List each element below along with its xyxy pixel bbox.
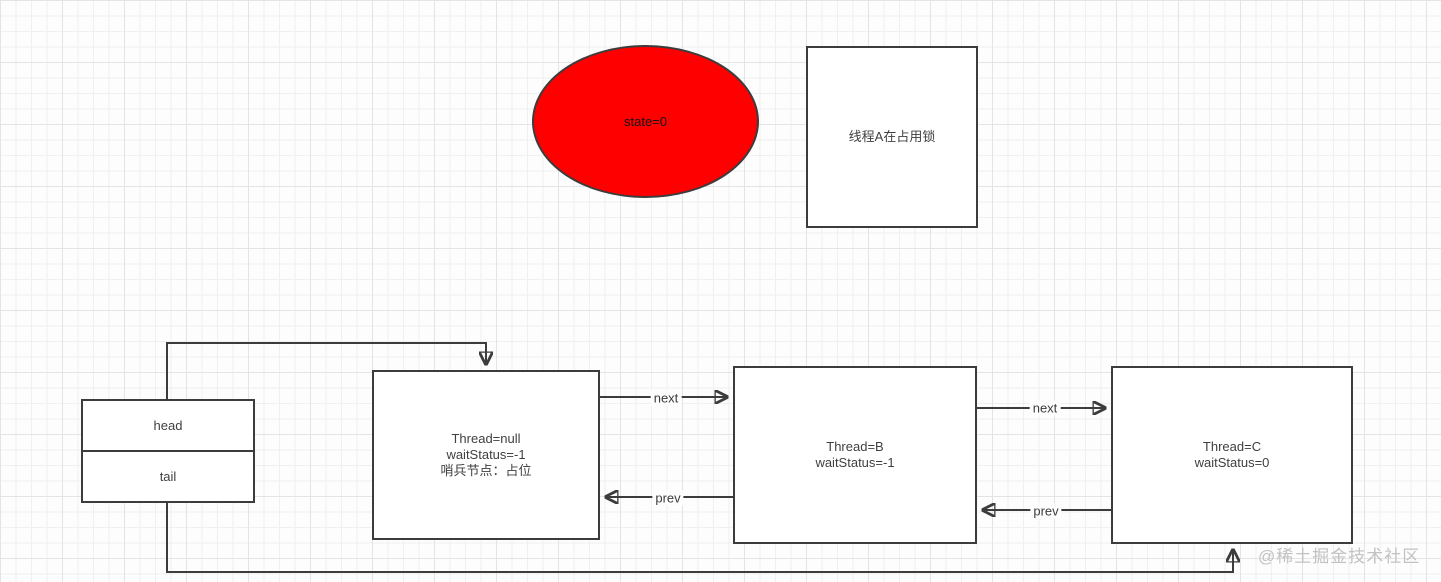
head-tail-box: head tail: [81, 399, 255, 503]
prev-label-2: prev: [1030, 504, 1061, 519]
node-line: waitStatus=0: [1195, 455, 1270, 471]
node-line: Thread=null: [451, 431, 520, 447]
node-c: Thread=C waitStatus=0: [1111, 366, 1353, 544]
thread-a-label: 线程A在占用锁: [849, 129, 936, 145]
node-line: 哨兵节点：占位: [440, 463, 531, 479]
sentinel-node: Thread=null waitStatus=-1 哨兵节点：占位: [372, 370, 600, 540]
next-label-1: next: [651, 391, 682, 406]
node-line: Thread=C: [1203, 439, 1261, 455]
head-cell: head: [83, 401, 253, 452]
watermark: @稀土掘金技术社区: [1258, 542, 1420, 567]
diagram-canvas: state=0 线程A在占用锁 head tail Thread=null wa…: [0, 0, 1441, 582]
tail-cell: tail: [83, 452, 253, 501]
state-ellipse: state=0: [532, 45, 759, 198]
node-line: Thread=B: [826, 439, 883, 455]
next-label-2: next: [1030, 401, 1061, 416]
thread-a-box: 线程A在占用锁: [806, 46, 978, 228]
state-label: state=0: [624, 114, 667, 130]
tail-to-node-c-arrow: [167, 501, 1233, 572]
tail-label: tail: [160, 469, 177, 485]
node-line: waitStatus=-1: [446, 447, 525, 463]
prev-label-1: prev: [652, 491, 683, 506]
head-label: head: [154, 418, 183, 434]
node-line: waitStatus=-1: [815, 455, 894, 471]
node-b: Thread=B waitStatus=-1: [733, 366, 977, 544]
